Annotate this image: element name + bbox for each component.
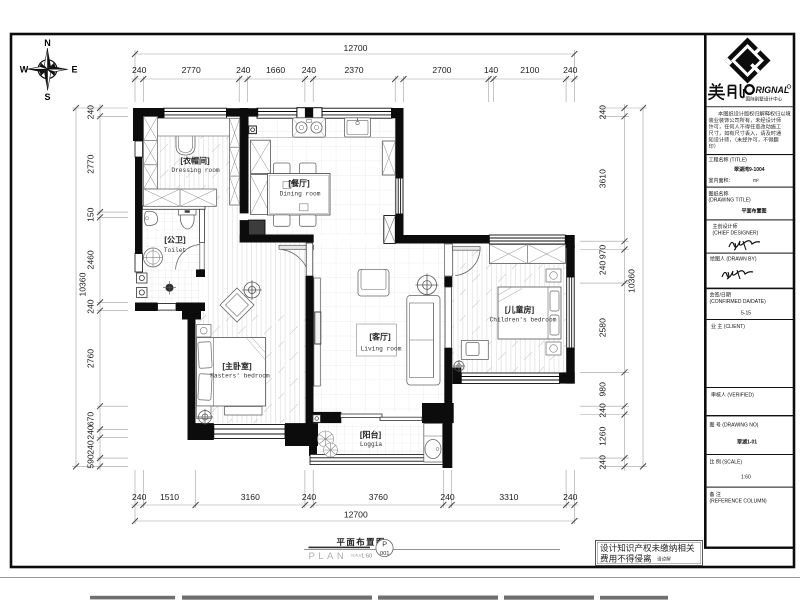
svg-text:室内面积：: 室内面积： <box>709 177 734 184</box>
svg-text:[儿童房]: [儿童房] <box>505 305 535 315</box>
svg-text:知设计师，（未经许可，不得翻: 知设计师，（未经许可，不得翻 <box>709 135 779 143</box>
svg-text:费用不得侵离: 费用不得侵离 <box>600 553 652 564</box>
svg-text:240: 240 <box>598 403 608 418</box>
svg-text:240: 240 <box>440 492 455 502</box>
svg-text:2770: 2770 <box>86 154 96 173</box>
svg-text:Living room: Living room <box>361 346 402 353</box>
svg-text:平面布置图: 平面布置图 <box>742 207 767 214</box>
svg-text:装业装饰公司所有，未经设计师: 装业装饰公司所有，未经设计师 <box>709 116 782 124</box>
svg-text:970: 970 <box>598 245 608 260</box>
svg-text:[衣帽间]: [衣帽间] <box>180 156 210 166</box>
svg-text:(DRAWING TITLE): (DRAWING TITLE) <box>709 198 752 204</box>
svg-text:Toilet: Toilet <box>164 247 187 254</box>
svg-text:W: W <box>20 64 29 74</box>
svg-text:240: 240 <box>86 440 96 455</box>
svg-text:240: 240 <box>86 425 96 440</box>
svg-text:12700: 12700 <box>344 43 368 53</box>
svg-text:P: P <box>382 540 387 549</box>
svg-text:[餐厅]: [餐厅] <box>288 178 310 188</box>
svg-text:001: 001 <box>380 551 390 557</box>
svg-text:1660: 1660 <box>266 65 285 75</box>
svg-text:m²: m² <box>753 178 759 184</box>
svg-text:1:60: 1:60 <box>361 554 372 560</box>
svg-text:[阳台]: [阳台] <box>360 430 382 440</box>
svg-text:[客厅]: [客厅] <box>369 332 391 342</box>
svg-text:240: 240 <box>598 455 608 470</box>
svg-text:2580: 2580 <box>598 318 608 337</box>
svg-text:尺寸，如有尺寸丢入，请及时通: 尺寸，如有尺寸丢入，请及时通 <box>709 129 782 137</box>
svg-text:240: 240 <box>132 492 147 502</box>
svg-text:[主卧室]: [主卧室] <box>222 361 252 371</box>
svg-text:240: 240 <box>236 65 251 75</box>
svg-text:本图纸设计版权归解释权归以境: 本图纸设计版权归解释权归以境 <box>718 109 791 117</box>
svg-text:240: 240 <box>86 299 96 314</box>
svg-text:PLAN: PLAN <box>309 551 348 562</box>
svg-text:许可，任何人不得任意改动施工: 许可，任何人不得任意改动施工 <box>709 122 782 130</box>
svg-text:240: 240 <box>563 65 578 75</box>
svg-text:2460: 2460 <box>86 250 96 269</box>
svg-text:绘图人 (DRAWN BY): 绘图人 (DRAWN BY) <box>710 256 757 263</box>
svg-text:2760: 2760 <box>86 349 96 368</box>
svg-text:图纸名称: 图纸名称 <box>709 190 729 197</box>
svg-text:240: 240 <box>598 105 608 120</box>
svg-text:240: 240 <box>302 492 317 502</box>
svg-text:2770: 2770 <box>182 65 201 75</box>
svg-text:翠湖1-01: 翠湖1-01 <box>737 439 757 446</box>
svg-text:备 注: 备 注 <box>710 491 721 498</box>
svg-text:1510: 1510 <box>160 492 179 502</box>
svg-text:2100: 2100 <box>520 65 539 75</box>
svg-text:670: 670 <box>86 412 96 427</box>
svg-text:Children's bedroom: Children's bedroom <box>490 317 557 324</box>
svg-text:150: 150 <box>86 207 96 222</box>
svg-text:5-15: 5-15 <box>741 311 751 317</box>
svg-text:(CHIEF DESIGNER): (CHIEF DESIGNER) <box>713 231 759 237</box>
svg-text:Masters' bedroom: Masters' bedroom <box>210 373 270 380</box>
svg-text:240: 240 <box>86 105 96 120</box>
svg-text:590: 590 <box>86 454 96 469</box>
svg-text:Loggia: Loggia <box>360 441 383 448</box>
svg-text:(CONFIRMED DA/DATE): (CONFIRMED DA/DATE) <box>710 299 767 305</box>
svg-text:S: S <box>44 92 50 102</box>
svg-text:12700: 12700 <box>344 510 368 520</box>
svg-text:240: 240 <box>563 492 578 502</box>
svg-text:会签/日期: 会签/日期 <box>710 292 731 299</box>
svg-text:工程名称 (TITLE): 工程名称 (TITLE) <box>709 157 748 164</box>
svg-text:Dining room: Dining room <box>280 191 321 198</box>
svg-text:980: 980 <box>598 382 608 397</box>
svg-text:图 号 (DRAWING NO): 图 号 (DRAWING NO) <box>710 423 759 429</box>
svg-text:[公卫]: [公卫] <box>164 236 186 245</box>
svg-text:2370: 2370 <box>344 65 363 75</box>
svg-text:业 主 (CLIENT): 业 主 (CLIENT) <box>711 323 745 330</box>
svg-text:(REFERENCE COLUMN): (REFERENCE COLUMN) <box>710 499 768 505</box>
svg-text:翠湖湾9-1004: 翠湖湾9-1004 <box>734 166 765 173</box>
svg-text:主创设计师: 主创设计师 <box>713 223 738 230</box>
svg-text:请谅解: 请谅解 <box>657 556 671 563</box>
svg-text:Dressing room: Dressing room <box>171 167 220 174</box>
svg-text:1:60: 1:60 <box>741 475 751 481</box>
svg-text:240: 240 <box>598 261 608 276</box>
svg-text:设计知识产权未缴纳相关: 设计知识产权未缴纳相关 <box>600 542 695 553</box>
svg-text:3310: 3310 <box>499 492 518 502</box>
svg-text:国际别墅设计中心: 国际别墅设计中心 <box>746 96 783 103</box>
svg-text:240: 240 <box>302 65 317 75</box>
svg-text:N: N <box>44 38 51 48</box>
svg-text:3610: 3610 <box>598 169 608 188</box>
svg-text:审核人 (VERIFIED): 审核人 (VERIFIED) <box>711 392 754 399</box>
svg-text:140: 140 <box>484 65 499 75</box>
svg-text:240: 240 <box>132 65 147 75</box>
svg-text:10360: 10360 <box>627 269 637 293</box>
svg-text:3160: 3160 <box>241 492 260 502</box>
svg-text:10360: 10360 <box>78 272 88 296</box>
svg-text:RIGNAL: RIGNAL <box>756 85 790 95</box>
svg-text:3760: 3760 <box>369 492 388 502</box>
svg-text:E: E <box>71 64 77 74</box>
svg-text:比 例 (SCALE): 比 例 (SCALE) <box>710 459 743 466</box>
svg-text:印）: 印） <box>709 143 719 150</box>
svg-text:1260: 1260 <box>598 427 608 446</box>
svg-text:2700: 2700 <box>432 65 451 75</box>
